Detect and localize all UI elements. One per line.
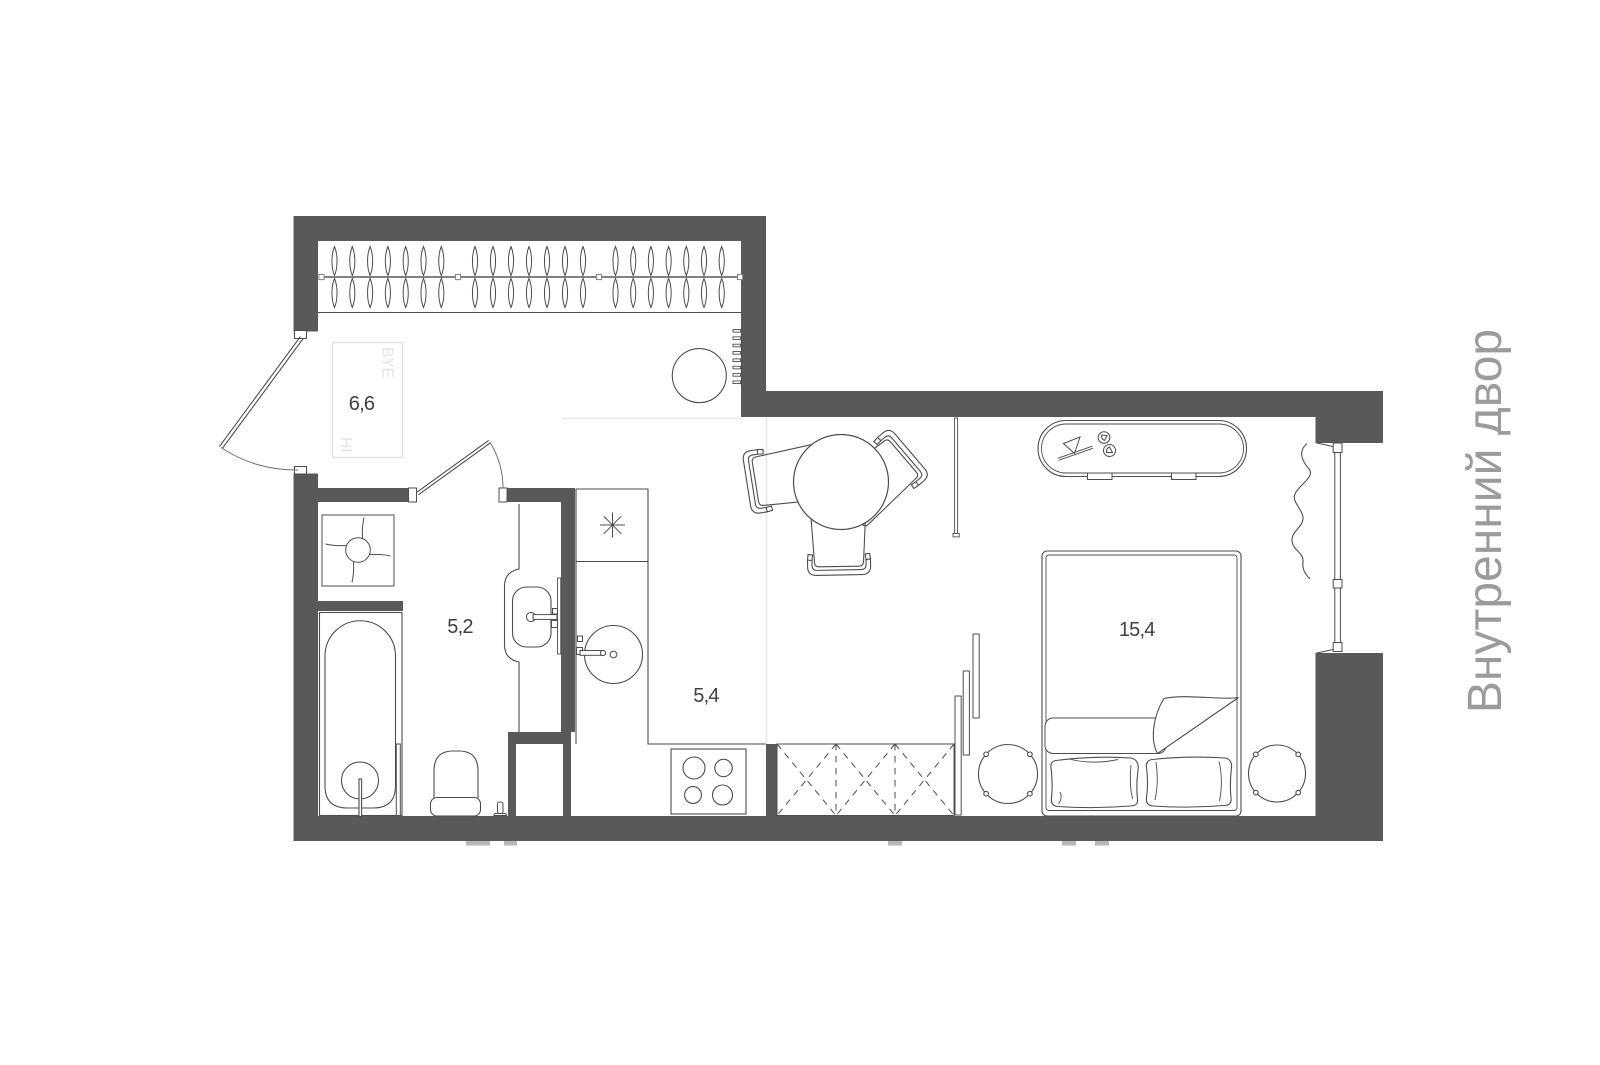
- svg-text:6,6: 6,6: [349, 393, 375, 415]
- svg-text:5,4: 5,4: [693, 685, 719, 707]
- svg-text:BYE: BYE: [379, 347, 396, 378]
- svg-text:15,4: 15,4: [1119, 619, 1155, 641]
- svg-text:5,2: 5,2: [447, 616, 473, 638]
- svg-text:Внутренний двор: Внутренний двор: [1459, 329, 1512, 713]
- svg-text:HI: HI: [337, 437, 354, 453]
